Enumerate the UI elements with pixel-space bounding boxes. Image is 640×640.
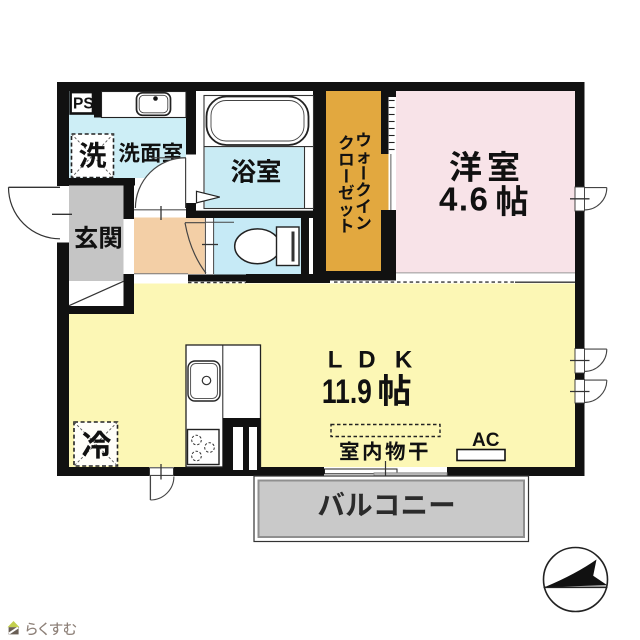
svg-text:K: K xyxy=(395,347,413,374)
svg-text:D: D xyxy=(358,347,375,374)
svg-text:4.6: 4.6 xyxy=(439,181,489,218)
svg-text:L: L xyxy=(328,347,343,374)
svg-text:11.9: 11.9 xyxy=(322,373,372,411)
svg-text:AC: AC xyxy=(472,430,500,451)
svg-text:PS: PS xyxy=(73,96,94,113)
